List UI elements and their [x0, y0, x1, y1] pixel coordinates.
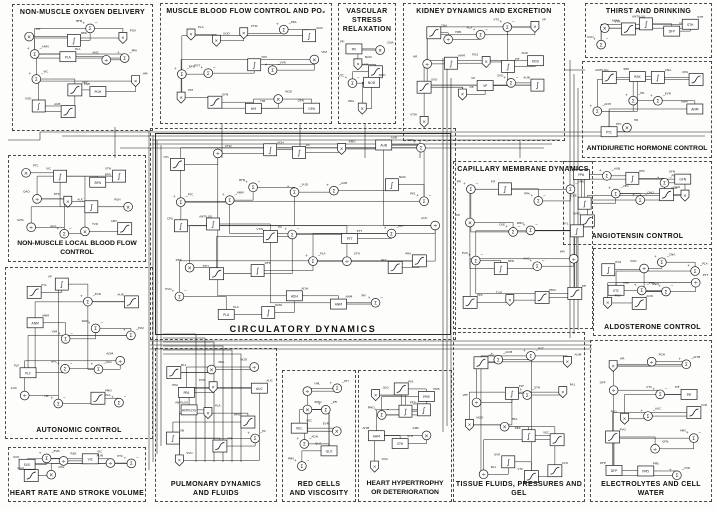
section-title-autonomic-control: AUTONOMIC CONTROL — [6, 426, 152, 435]
section-title-aldosterone-control: ALDOSTERONE CONTROL — [594, 323, 711, 332]
section-vascular-stress-relaxation: VASCULAR STRESS RELAXATION — [338, 3, 396, 124]
section-non-muscle-oxygen-delivery: NON-MUSCLE OXYGEN DELIVERY — [12, 4, 153, 131]
section-red-cells-and-viscosity: RED CELLS AND VISCOSITY — [282, 370, 356, 502]
section-thirst-and-drinking: THIRST AND DRINKING — [585, 3, 712, 58]
section-non-muscle-local-blood-flow: NON-MUSCLE LOCAL BLOOD FLOW CONTROL — [8, 155, 146, 262]
section-electrolytes-and-cell-water: ELECTROLYTES AND CELL WATER — [590, 340, 712, 502]
section-title-vascular-stress-relaxation: VASCULAR STRESS RELAXATION — [339, 7, 395, 34]
section-title-electrolytes-and-cell-water: ELECTROLYTES AND CELL WATER — [591, 480, 711, 498]
section-heart-rate-and-stroke-volume: HEART RATE AND STROKE VOLUME — [8, 447, 146, 502]
bus-line — [8, 132, 40, 140]
section-kidney-dynamics-and-excretion: KIDNEY DYNAMICS AND EXCRETION — [403, 3, 565, 141]
section-title-antidiuretic-hormone-control: ANTIDIURETIC HORMONE CONTROL — [583, 145, 711, 154]
section-title-tissue-fluids-pressures-gel: TISSUE FLUIDS, PRESSURES AND GEL — [454, 480, 584, 498]
guyton-system-diagram: ×PIF∫REKΣ+−BFN×POVΣ+−AHMPLAPLA÷AMCΣ+−PPA… — [0, 0, 716, 510]
section-title-heart-hypertrophy-deterioration: HEART HYPERTROPHY OR DETERIORATION — [359, 480, 451, 498]
section-title-red-cells-and-viscosity: RED CELLS AND VISCOSITY — [283, 480, 355, 498]
section-title-thirst-and-drinking: THIRST AND DRINKING — [586, 7, 711, 16]
section-title-pulmonary-dynamics-and-fluids: PULMONARY DYNAMICS AND FLUIDS — [156, 480, 276, 498]
section-title-kidney-dynamics-and-excretion: KIDNEY DYNAMICS AND EXCRETION — [404, 7, 564, 16]
section-circulatory-dynamics: CIRCULATORY DYNAMICS — [150, 128, 456, 340]
section-aldosterone-control: ALDOSTERONE CONTROL — [593, 248, 712, 336]
section-title-circulatory-dynamics: CIRCULATORY DYNAMICS — [151, 324, 455, 336]
section-autonomic-control: AUTONOMIC CONTROL — [5, 267, 153, 439]
section-muscle-blood-flow-control: MUSCLE BLOOD FLOW CONTROL AND PO₂ — [160, 3, 332, 124]
section-pulmonary-dynamics-and-fluids: PULMONARY DYNAMICS AND FLUIDS — [155, 348, 277, 502]
section-title-capillary-membrane-dynamics: CAPILLARY MEMBRANE DYNAMICS — [454, 165, 592, 174]
section-title-muscle-blood-flow-control: MUSCLE BLOOD FLOW CONTROL AND PO₂ — [161, 7, 331, 16]
section-title-non-muscle-local-blood-flow: NON-MUSCLE LOCAL BLOOD FLOW CONTROL — [9, 240, 145, 258]
section-title-heart-rate-and-stroke-volume: HEART RATE AND STROKE VOLUME — [9, 489, 145, 498]
section-antidiuretic-hormone-control: ANTIDIURETIC HORMONE CONTROL — [582, 61, 712, 158]
section-title-non-muscle-oxygen-delivery: NON-MUSCLE OXYGEN DELIVERY — [13, 8, 152, 17]
section-capillary-membrane-dynamics: CAPILLARY MEMBRANE DYNAMICS — [453, 161, 593, 329]
section-heart-hypertrophy-deterioration: HEART HYPERTROPHY OR DETERIORATION — [358, 370, 452, 502]
section-tissue-fluids-pressures-gel: TISSUE FLUIDS, PRESSURES AND GEL — [453, 332, 585, 502]
